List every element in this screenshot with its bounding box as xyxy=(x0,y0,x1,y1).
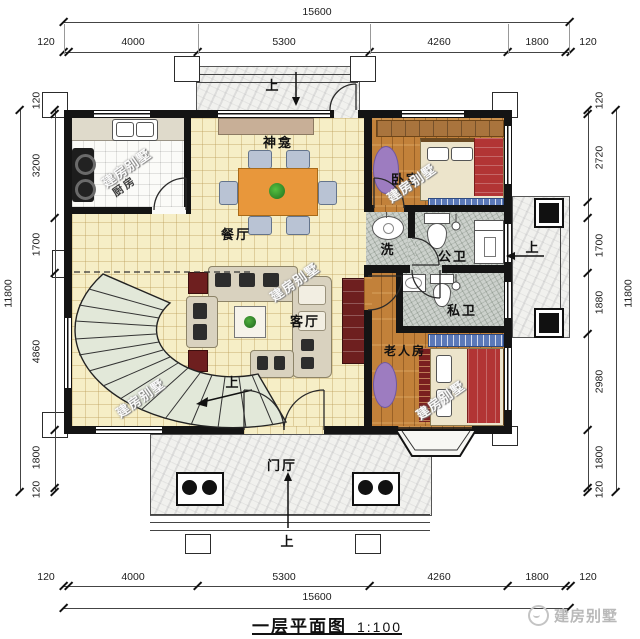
dim-right-seg: 1700 xyxy=(594,216,607,276)
elder-room-door xyxy=(368,276,402,310)
staircase xyxy=(74,272,286,428)
dim-right-seg: 120 xyxy=(594,460,607,520)
dim-top-seg: 120 xyxy=(572,36,604,49)
dim-top-total: 15600 xyxy=(287,6,347,19)
brand-watermark: 建房别墅 xyxy=(528,605,618,626)
label-living: 客厅 xyxy=(277,314,333,329)
dim-left-seg: 120 xyxy=(31,71,44,131)
dim-line xyxy=(55,110,56,492)
label-dining: 餐厅 xyxy=(208,227,264,242)
kitchen-door xyxy=(154,178,186,210)
entry-door-right xyxy=(284,390,324,430)
label-foyer: 门厅 xyxy=(254,458,310,473)
dim-bottom-seg: 120 xyxy=(572,571,604,584)
dim-left-seg: 4860 xyxy=(31,322,44,382)
dim-top-seg: 4260 xyxy=(409,36,469,49)
dim-left-seg: 120 xyxy=(31,460,44,520)
label-up-stairs: 上 xyxy=(222,375,244,390)
dim-right-seg: 2980 xyxy=(594,352,607,412)
dim-top-seg: 4000 xyxy=(103,36,163,49)
back-porch-door xyxy=(330,84,356,110)
label-private-bath: 私卫 xyxy=(434,303,490,318)
dim-right-seg: 120 xyxy=(594,71,607,131)
dim-bottom-seg: 4260 xyxy=(409,571,469,584)
dim-bottom-seg: 5300 xyxy=(254,571,314,584)
dim-bottom-total: 15600 xyxy=(287,591,347,604)
label-up-back-porch: 上 xyxy=(262,78,284,93)
dim-bottom-seg: 4000 xyxy=(103,571,163,584)
dim-left-seg: 3200 xyxy=(31,136,44,196)
dim-top-seg: 120 xyxy=(30,36,62,49)
dim-top-seg: 5300 xyxy=(254,36,314,49)
dim-line xyxy=(64,22,570,23)
dim-line xyxy=(64,608,570,609)
dim-right-seg: 2720 xyxy=(594,128,607,188)
dim-right-seg: 1880 xyxy=(594,273,607,333)
label-elder-room: 老人房 xyxy=(376,344,434,359)
dim-bottom-seg: 1800 xyxy=(507,571,567,584)
direction-arrows xyxy=(284,72,544,528)
dim-line xyxy=(616,110,617,492)
dim-line xyxy=(64,52,570,53)
dim-line xyxy=(64,586,570,587)
dim-line xyxy=(588,110,589,492)
private-bath-door xyxy=(412,270,440,298)
dim-right-total: 11800 xyxy=(623,264,636,324)
label-up-side-porch: 上 xyxy=(522,240,544,255)
label-up-entry: 上 xyxy=(277,534,299,549)
dim-line xyxy=(20,110,21,492)
label-wash: 洗 xyxy=(376,242,400,257)
brand-logo-icon xyxy=(528,605,549,626)
floor-plan-canvas: 神龛 餐厅 卧室 洗 公卫 私卫 老人房 客厅 门厅 厨房 上 上 上 上 建房… xyxy=(0,0,640,639)
dim-left-total: 11800 xyxy=(3,264,16,324)
dim-left-seg: 1700 xyxy=(31,215,44,275)
bay-window xyxy=(396,428,476,456)
dim-top-seg: 1800 xyxy=(507,36,567,49)
dim-bottom-seg: 120 xyxy=(30,571,62,584)
label-public-bath: 公卫 xyxy=(425,249,481,264)
brand-name: 建房别墅 xyxy=(554,605,618,626)
title-underline xyxy=(252,633,402,639)
label-shrine: 神龛 xyxy=(250,135,306,150)
